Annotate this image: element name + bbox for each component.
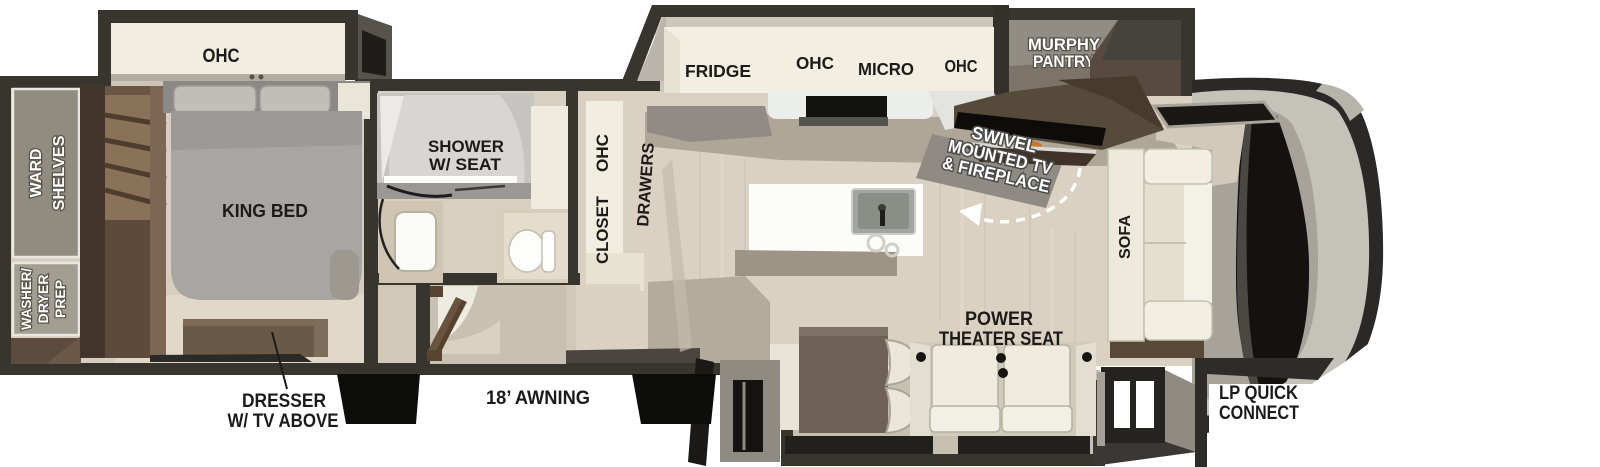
svg-text:PREP: PREP [53,280,68,318]
svg-text:W/ SEAT: W/ SEAT [429,156,501,174]
svg-text:PANTRY: PANTRY [1033,53,1095,71]
svg-text:DRESSER: DRESSER [242,391,326,412]
svg-text:18’ AWNING: 18’ AWNING [486,388,590,409]
svg-text:MURPHY: MURPHY [1028,36,1100,54]
svg-text:THEATER SEAT: THEATER SEAT [939,329,1063,350]
svg-text:W/ TV ABOVE: W/ TV ABOVE [228,411,339,432]
svg-text:OHC: OHC [594,134,612,172]
svg-text:WARD: WARD [28,149,45,198]
svg-text:DRYER: DRYER [36,274,51,323]
svg-text:OHC: OHC [796,53,834,73]
svg-text:CLOSET: CLOSET [594,196,612,264]
svg-text:OHC: OHC [203,46,240,67]
svg-text:LP QUICK: LP QUICK [1219,383,1298,404]
svg-text:WASHER/: WASHER/ [19,268,34,330]
svg-text:CONNECT: CONNECT [1219,403,1299,424]
svg-text:SHELVES: SHELVES [51,135,68,210]
svg-text:MICRO: MICRO [858,59,914,79]
svg-text:KING BED: KING BED [222,200,308,221]
svg-text:POWER: POWER [965,309,1033,330]
svg-text:SHOWER: SHOWER [428,138,504,156]
svg-text:FRIDGE: FRIDGE [685,61,751,81]
svg-text:OHC: OHC [945,56,978,76]
svg-text:SOFA: SOFA [1117,215,1134,259]
